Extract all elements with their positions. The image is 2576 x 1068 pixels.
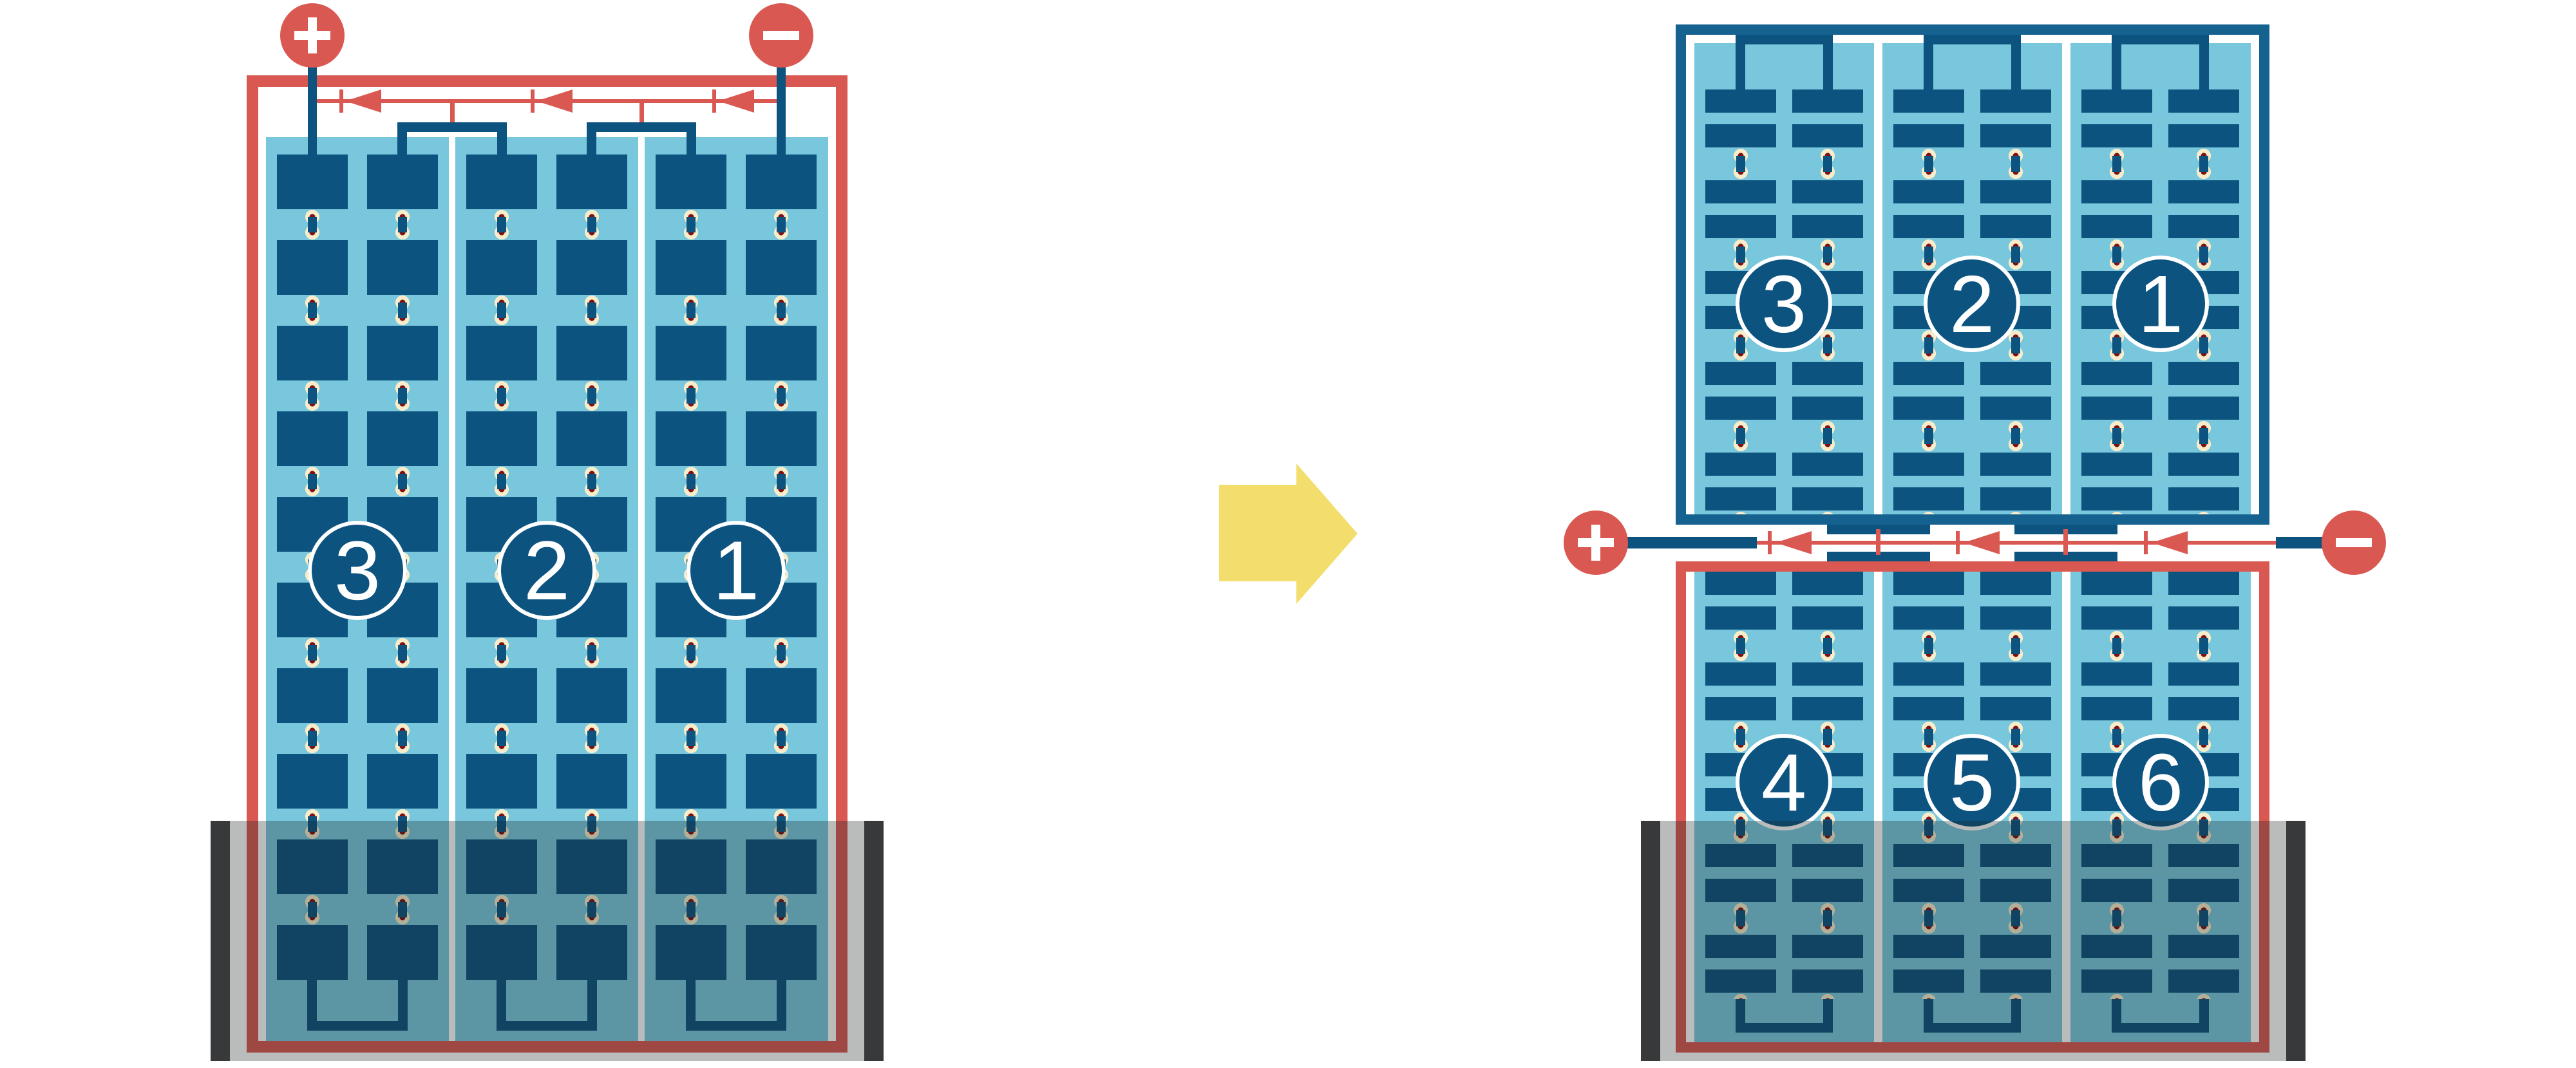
string-badge-label: 1 [2138, 258, 2183, 351]
shade-overlay [1660, 821, 2286, 1061]
transform-arrow-icon [1219, 464, 1358, 604]
string-badge: 1 [687, 521, 786, 620]
diode-cathode-bar-icon [2144, 531, 2148, 554]
string-badge-label: 6 [2138, 736, 2183, 829]
string-badge-label: 2 [524, 522, 570, 619]
diode-cathode-bar-icon [712, 89, 716, 113]
minus-icon [2336, 538, 2372, 547]
right-top-column-separator-1 [1874, 43, 1882, 514]
minus-terminal-wire [2276, 537, 2329, 548]
plus-terminal-icon [1564, 511, 1628, 575]
minus-terminal-stem [777, 63, 786, 156]
plus-terminal-wire [1623, 537, 1757, 548]
bypass-diode-icon [1776, 531, 1812, 554]
string-badge: 3 [1736, 256, 1832, 352]
left-bus-junction-stub-2 [639, 101, 644, 124]
minus-terminal-icon [2322, 511, 2386, 575]
minus-icon [763, 31, 799, 40]
plus-icon [1591, 525, 1600, 561]
arrow-head [1296, 464, 1358, 604]
string-badge: 4 [1736, 734, 1832, 830]
shade-edge-bar [1641, 821, 1660, 1061]
top-u-connector [1924, 35, 2021, 89]
string-badge-label: 4 [1761, 736, 1806, 829]
string-badge-label: 3 [334, 522, 381, 619]
minus-terminal-icon [749, 3, 813, 68]
bypass-diode-icon [718, 89, 754, 113]
plus-icon [308, 17, 317, 53]
left-bus-junction-stub-1 [450, 101, 455, 124]
half-cut-solar-module-diagram: 3 2 1 3 2 1 [0, 0, 2576, 1068]
diode-cathode-bar-icon [531, 89, 535, 113]
bypass-diode-icon [536, 89, 573, 113]
top-u-connector [587, 122, 696, 156]
shade-edge-bar [2286, 821, 2306, 1061]
bypass-diode-icon [345, 89, 381, 113]
string-badge: 3 [308, 521, 407, 620]
string-badge: 5 [1924, 734, 2020, 830]
plus-terminal-stem [308, 63, 317, 156]
right-bus-junction-stub-2 [2063, 529, 2068, 555]
string-badge: 6 [2112, 734, 2209, 830]
string-badge-label: 2 [1949, 258, 1994, 351]
arrow-shaft [1219, 485, 1296, 581]
string-badge-label: 5 [1949, 736, 1994, 829]
right-bus-junction-stub-1 [1876, 529, 1880, 555]
string-badge-label: 3 [1761, 258, 1806, 351]
top-u-connector [397, 122, 507, 156]
plus-terminal-icon [280, 3, 345, 68]
right-top-column-separator-2 [2062, 43, 2070, 514]
bypass-diode-icon [2152, 531, 2188, 554]
string-badge-label: 1 [713, 522, 759, 619]
right-diode-bus-wire [1748, 541, 2280, 545]
top-u-connector [1736, 35, 1833, 89]
shade-edge-bar [211, 821, 230, 1061]
string-badge: 1 [2112, 256, 2209, 352]
bypass-diode-icon [1964, 531, 2000, 554]
diode-cathode-bar-icon [339, 89, 343, 113]
shade-overlay [230, 821, 864, 1061]
top-u-connector [2112, 35, 2209, 89]
shade-edge-bar [864, 821, 884, 1061]
string-badge: 2 [1924, 256, 2020, 352]
string-badge: 2 [497, 521, 596, 620]
diode-cathode-bar-icon [1768, 531, 1772, 554]
diode-cathode-bar-icon [1956, 531, 1960, 554]
